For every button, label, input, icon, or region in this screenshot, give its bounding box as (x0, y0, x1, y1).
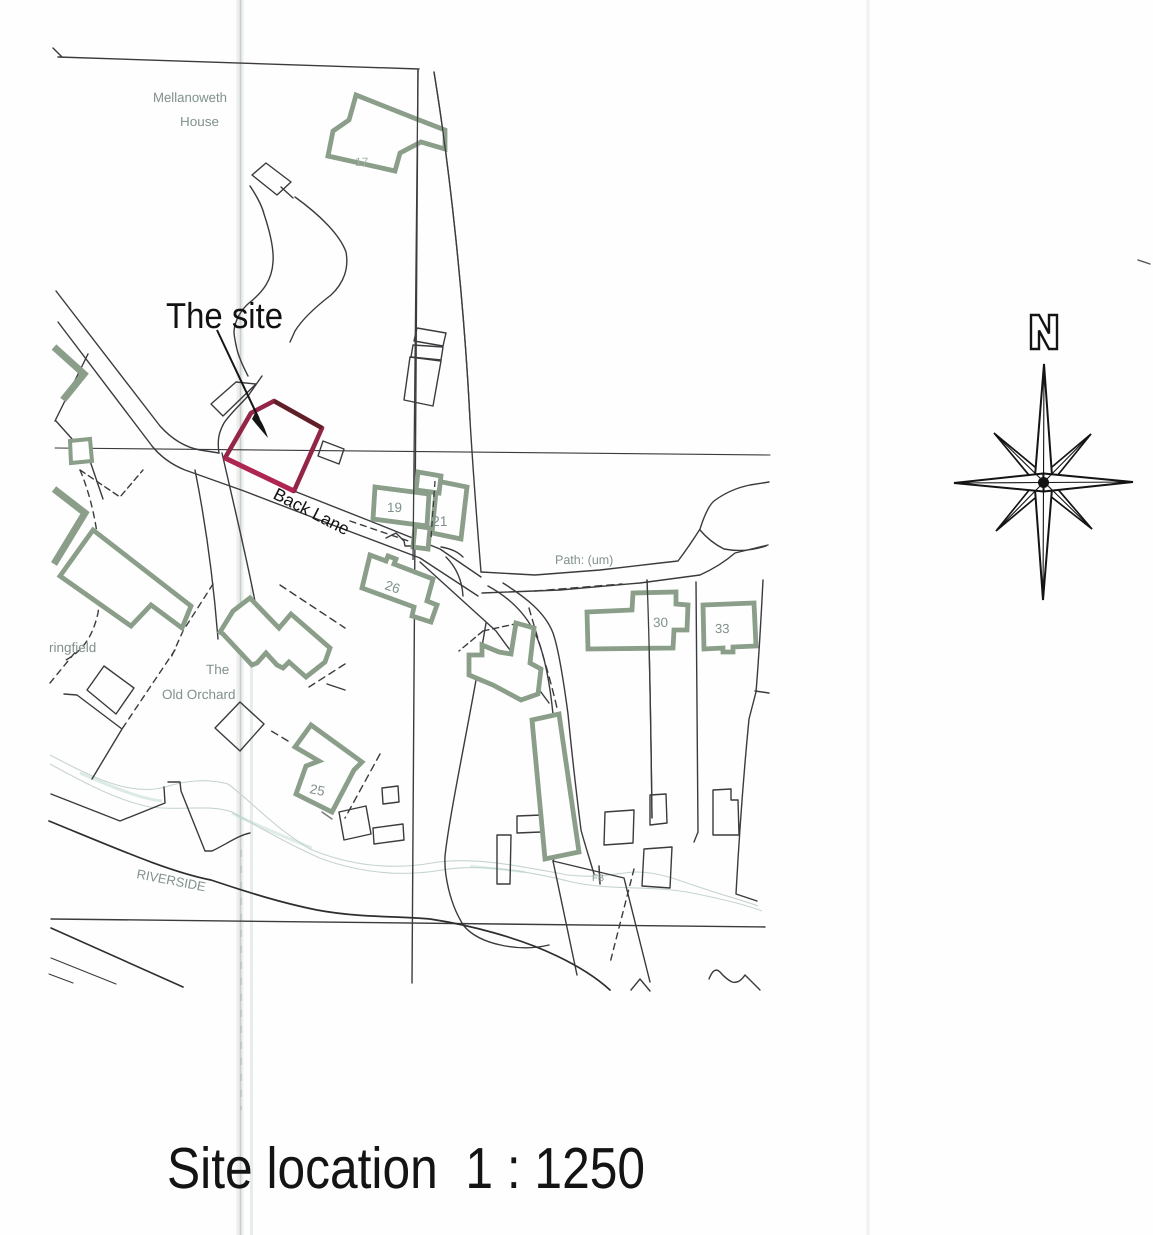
svg-text:Path: (um): Path: (um) (555, 553, 613, 567)
svg-text:The site: The site (166, 295, 283, 336)
svg-text:30: 30 (653, 615, 668, 630)
svg-text:17: 17 (355, 155, 369, 169)
svg-text:25: 25 (308, 781, 326, 799)
svg-text:Mellanoweth: Mellanoweth (153, 90, 227, 105)
svg-text:FB: FB (592, 873, 604, 884)
svg-text:Old Orchard: Old Orchard (162, 687, 236, 702)
svg-text:33: 33 (715, 621, 729, 636)
svg-text:Site location 1 : 1250: Site location 1 : 1250 (167, 1136, 645, 1201)
svg-text:The: The (206, 662, 229, 677)
svg-text:House: House (180, 114, 219, 129)
svg-text:19: 19 (387, 500, 402, 515)
svg-text:ringfield: ringfield (49, 640, 96, 655)
svg-text:21: 21 (432, 513, 448, 529)
